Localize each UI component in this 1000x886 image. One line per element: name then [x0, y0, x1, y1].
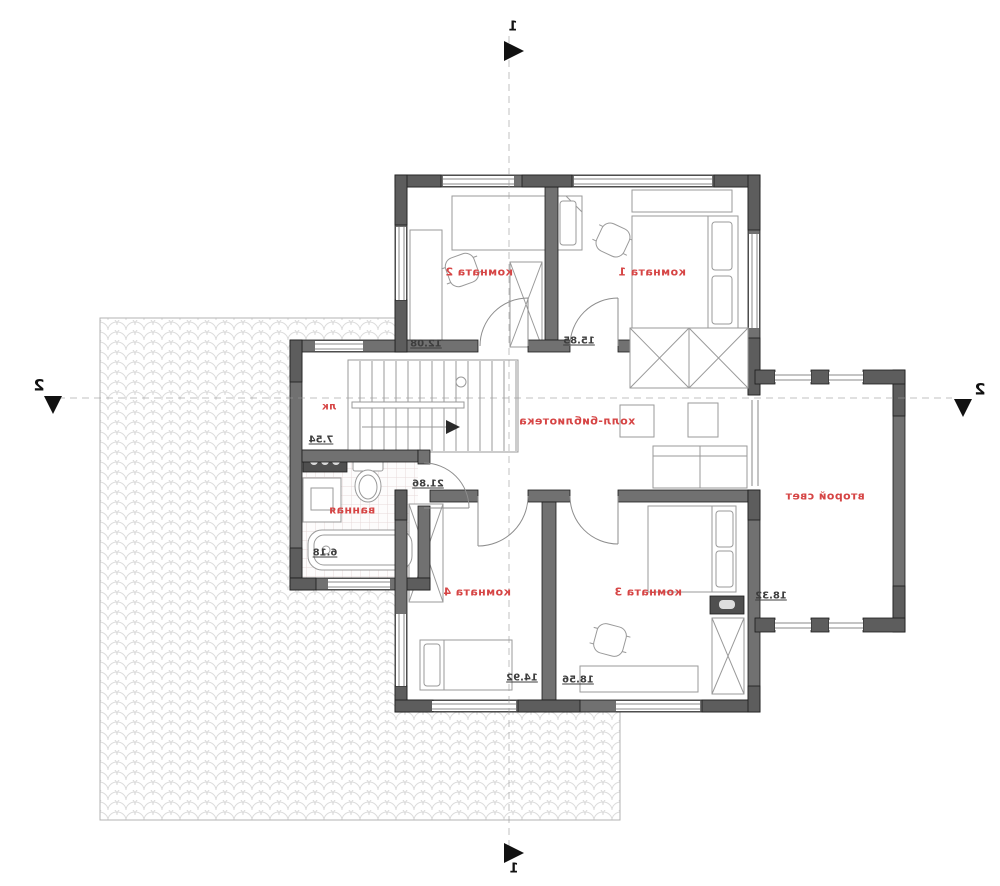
toilet	[353, 458, 383, 502]
staircase	[348, 360, 518, 452]
room-area-hall: 21.86	[412, 479, 444, 490]
section-number-left: 2	[33, 376, 44, 395]
section-arrow-top-icon	[504, 41, 524, 61]
shelf-room1	[632, 190, 732, 212]
window-room4-left	[396, 614, 406, 686]
window-room4-bottom	[432, 701, 516, 711]
bed-room3	[648, 506, 736, 592]
room-area-room1: 15.85	[563, 336, 595, 347]
room-area-secondlight: 18.32	[755, 591, 787, 602]
room-area-room4: 14.92	[506, 673, 538, 684]
room-label-hall: холл-библиотека	[519, 415, 635, 428]
section-arrow-left-icon	[44, 396, 62, 414]
window-room2-left	[396, 227, 406, 300]
desk-room3	[580, 666, 698, 692]
window-room1-top	[574, 176, 712, 186]
room-area-room2: 12.08	[410, 339, 442, 350]
room-label-room4: комната 4	[443, 586, 511, 599]
wardrobe-hall	[630, 328, 748, 388]
section-number-top: 1	[508, 20, 517, 35]
stair-newel-post	[456, 377, 466, 387]
wardrobe-room3	[712, 618, 744, 694]
sofa-hall	[653, 446, 747, 488]
room-area-room3: 18.56	[562, 675, 594, 686]
window-bath-bottom	[328, 579, 390, 589]
wardrobe-room2	[510, 262, 542, 347]
room-label-bath: ванная	[329, 504, 375, 517]
table-hall-2	[688, 403, 718, 437]
window-room3-bottom	[616, 701, 700, 711]
floor-plan-canvas: 1 1 2 2 комната 2 12.08 комната 1 15.85 …	[0, 0, 1000, 886]
bed-room2	[452, 196, 582, 250]
section-arrow-bottom-icon	[504, 843, 524, 863]
room-label-room2: комната 2	[445, 266, 513, 279]
room-area-bath: 6.18	[313, 548, 338, 559]
section-arrow-right-icon	[954, 399, 972, 417]
room-label-room1: комната 1	[618, 266, 686, 279]
room-label-secondlight: второй свет	[785, 490, 865, 503]
section-number-bottom: 1	[509, 862, 518, 877]
room-label-stair: лк	[322, 402, 337, 413]
window-hall-left	[315, 341, 363, 351]
window-room2-top	[443, 176, 514, 186]
desk-room2	[410, 230, 442, 350]
room-area-stair: 7.54	[309, 435, 334, 446]
electrical-panel-box	[710, 596, 744, 614]
bed-room4	[420, 640, 512, 690]
section-number-right: 2	[974, 380, 985, 399]
floor-plan-drawing	[0, 0, 1000, 886]
window-room1-right	[749, 234, 759, 328]
room-label-room3: комната 3	[614, 586, 682, 599]
